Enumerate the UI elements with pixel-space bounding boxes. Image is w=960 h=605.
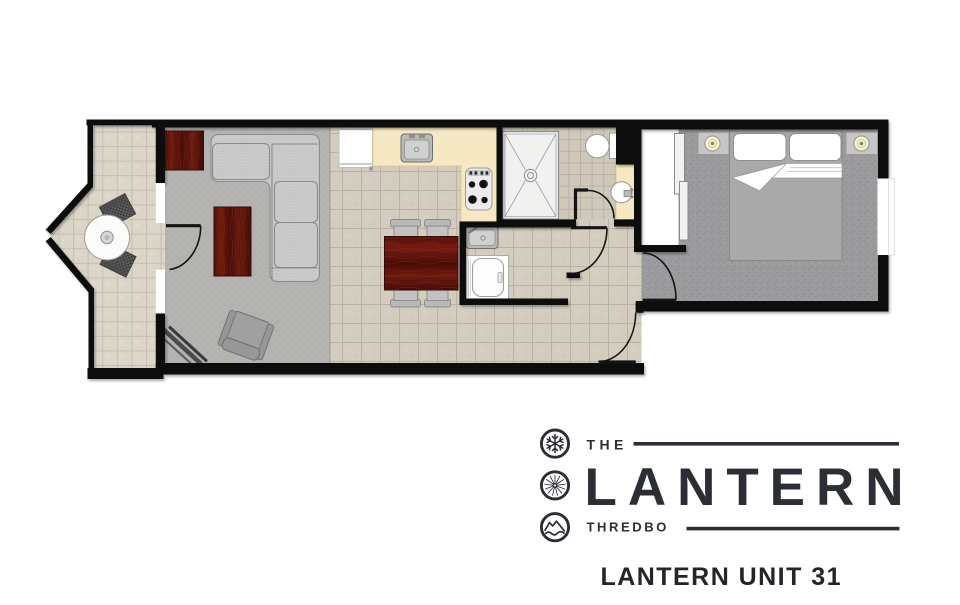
svg-text:LANTERN UNIT 31: LANTERN UNIT 31 xyxy=(601,563,841,591)
svg-text:THE: THE xyxy=(587,437,628,453)
svg-text:THREDBO: THREDBO xyxy=(587,520,669,535)
svg-text:LANTERN: LANTERN xyxy=(585,458,904,517)
